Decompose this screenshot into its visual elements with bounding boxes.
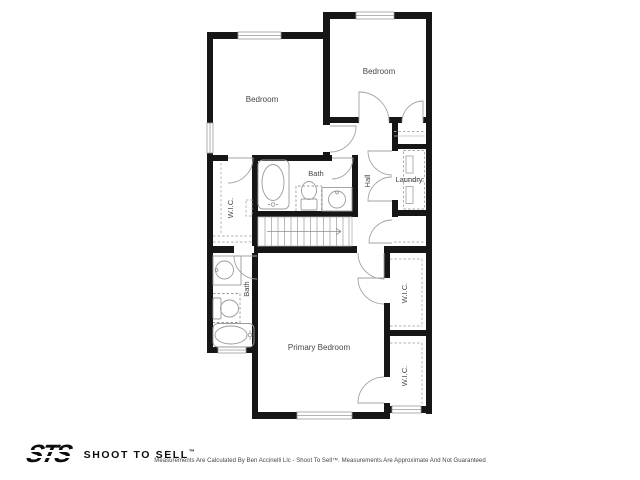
room-label-wic-left: W.I.C.	[226, 198, 235, 218]
door-bath-upper	[332, 158, 353, 179]
sink-vanity	[213, 256, 241, 285]
room-label-hall: Hall	[363, 174, 372, 187]
room-label-laundry: Laundry	[395, 175, 422, 184]
door-wic-right-2	[358, 377, 384, 403]
bath-upper-fixtures	[258, 160, 352, 211]
door-primary-entry	[358, 253, 384, 279]
room-label-primary-bedroom: Primary Bedroom	[288, 343, 351, 352]
tub-faucet	[271, 203, 275, 207]
toilet-tank	[301, 199, 317, 210]
trademark-symbol: ™	[189, 449, 195, 455]
tub-faucet	[248, 333, 252, 337]
room-label-bedroom-top-right: Bedroom	[363, 67, 396, 76]
door-wic-right-1	[358, 278, 384, 304]
room-label-wic-right-1: W.I.C.	[400, 283, 409, 303]
measurement-disclaimer: Measurements Are Calculated By Ben Accin…	[0, 458, 640, 464]
toilet-bowl	[221, 300, 239, 317]
door-closet-top-right	[402, 101, 423, 122]
staircase	[258, 217, 352, 246]
bath-lower-fixtures	[213, 256, 254, 347]
door-bedroom-left	[330, 126, 356, 152]
door-laundry-upper	[368, 151, 392, 175]
door-wic-left	[228, 158, 253, 183]
wic-left-shelf-return	[246, 200, 252, 216]
dryer	[404, 181, 425, 209]
floor-plan: Bedroom Bedroom Bath W.I.C. Hall Laundry…	[0, 0, 640, 480]
toilet-bowl	[302, 182, 317, 200]
room-label-wic-right-2: W.I.C.	[400, 366, 409, 386]
toilet-tank	[213, 298, 221, 319]
room-label-bath-upper: Bath	[308, 169, 323, 178]
floorplan-page: Bedroom Bedroom Bath W.I.C. Hall Laundry…	[0, 0, 640, 480]
door-bedroom-top-right	[359, 92, 389, 122]
door-hall-closet	[369, 220, 392, 243]
room-label-bath-lower: Bath	[242, 281, 251, 296]
walls	[207, 12, 432, 419]
room-label-bedroom-left: Bedroom	[246, 95, 279, 104]
